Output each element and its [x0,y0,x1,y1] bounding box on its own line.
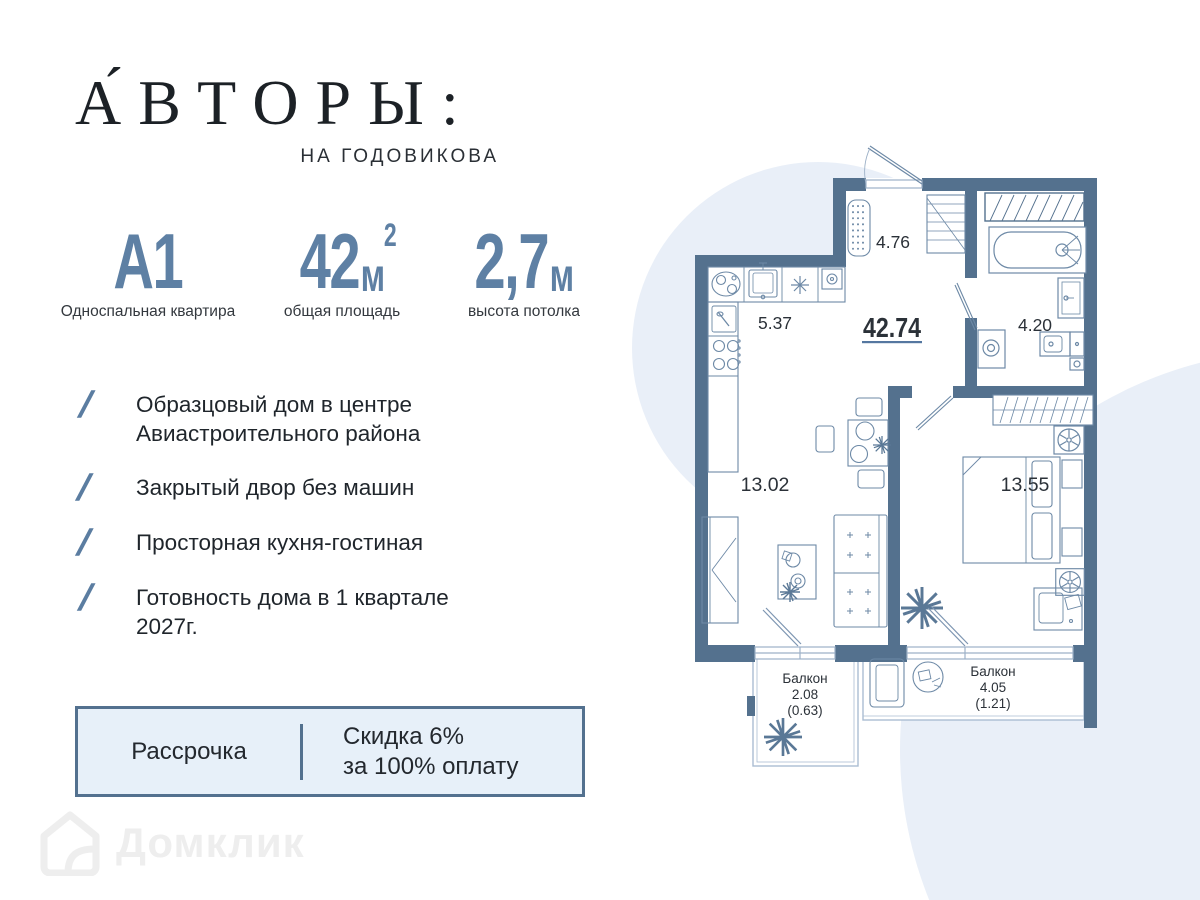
watermark: Домклик [38,810,305,876]
feature-text: Образцовый дом в центре Авиастроительног… [136,390,511,448]
ceiling-label: высота потолка [468,303,580,321]
hallway-area-label: 4.76 [876,232,910,252]
brand-location: НА ГОДОВИКОВА [75,146,499,168]
plan-code-label: Односпальная квартира [61,303,235,321]
spec-ceiling: 2,7м высота потолка [440,228,608,321]
svg-text:(0.63): (0.63) [787,703,822,718]
shaft-hatched [985,193,1084,221]
svg-text:Балкон: Балкон [970,664,1015,679]
feature-item: / Готовность дома в 1 квартале 2027г. [78,583,548,641]
domclick-house-icon [38,810,102,876]
svg-text:4.05: 4.05 [980,680,1006,695]
spec-area: 42м2 общая площадь [244,228,440,321]
spec-plan-code: А1 Односпальная квартира [52,228,244,321]
kitchen-area-label: 5.37 [758,313,792,333]
living-room-area-label: 13.02 [741,474,790,496]
total-area-label: 42.74 [863,312,921,343]
specs-row: А1 Односпальная квартира 42м2 общая площ… [52,228,608,321]
feature-item: / Закрытый двор без машин [78,473,548,503]
offer-discount-label: Скидка 6% за 100% оплату [303,722,519,782]
feature-list: / Образцовый дом в центре Авиастроительн… [78,390,548,666]
entry-door [865,146,922,188]
bedroom-area-label: 13.55 [1001,474,1050,496]
offer-discount-line2: за 100% оплату [343,752,519,782]
area-unit: м [360,249,385,301]
feature-text: Закрытый двор без машин [136,473,414,503]
svg-text:Балкон: Балкон [782,671,827,686]
offer-banner: Рассрочка Скидка 6% за 100% оплату [75,706,585,797]
area-label: общая площадь [284,303,400,321]
feature-item: / Просторная кухня-гостиная [78,528,548,558]
ceiling-unit: м [549,249,574,301]
feature-slash-icon: / [74,583,140,641]
offer-discount-line1: Скидка 6% [343,722,519,752]
feature-item: / Образцовый дом в центре Авиастроительн… [78,390,548,448]
feature-slash-icon: / [76,473,138,503]
floor-plan: 4.76 5.37 4.20 13.02 13.55 42.74 Балкон … [660,140,1130,800]
total-area-underline [862,341,922,343]
offer-installment-label: Рассрочка [78,738,300,766]
feature-slash-icon: / [74,390,140,448]
feature-text: Просторная кухня-гостиная [136,528,423,558]
brand-logo: А́ВТОРЫ: [75,66,476,140]
bathroom-area-label: 4.20 [1018,315,1052,335]
svg-text:2.08: 2.08 [792,687,818,702]
area-sup: 2 [383,222,396,250]
feature-slash-icon: / [76,528,138,558]
svg-text:(1.21): (1.21) [975,696,1010,711]
feature-text: Готовность дома в 1 квартале 2027г. [136,583,511,641]
area-value: 42 [299,228,359,295]
ceiling-value: 2,7 [474,228,548,295]
watermark-text: Домклик [116,819,305,867]
flyer-page: А́ВТОРЫ: НА ГОДОВИКОВА А1 Односпальная к… [0,0,1200,900]
plan-code-value: А1 [114,228,183,295]
